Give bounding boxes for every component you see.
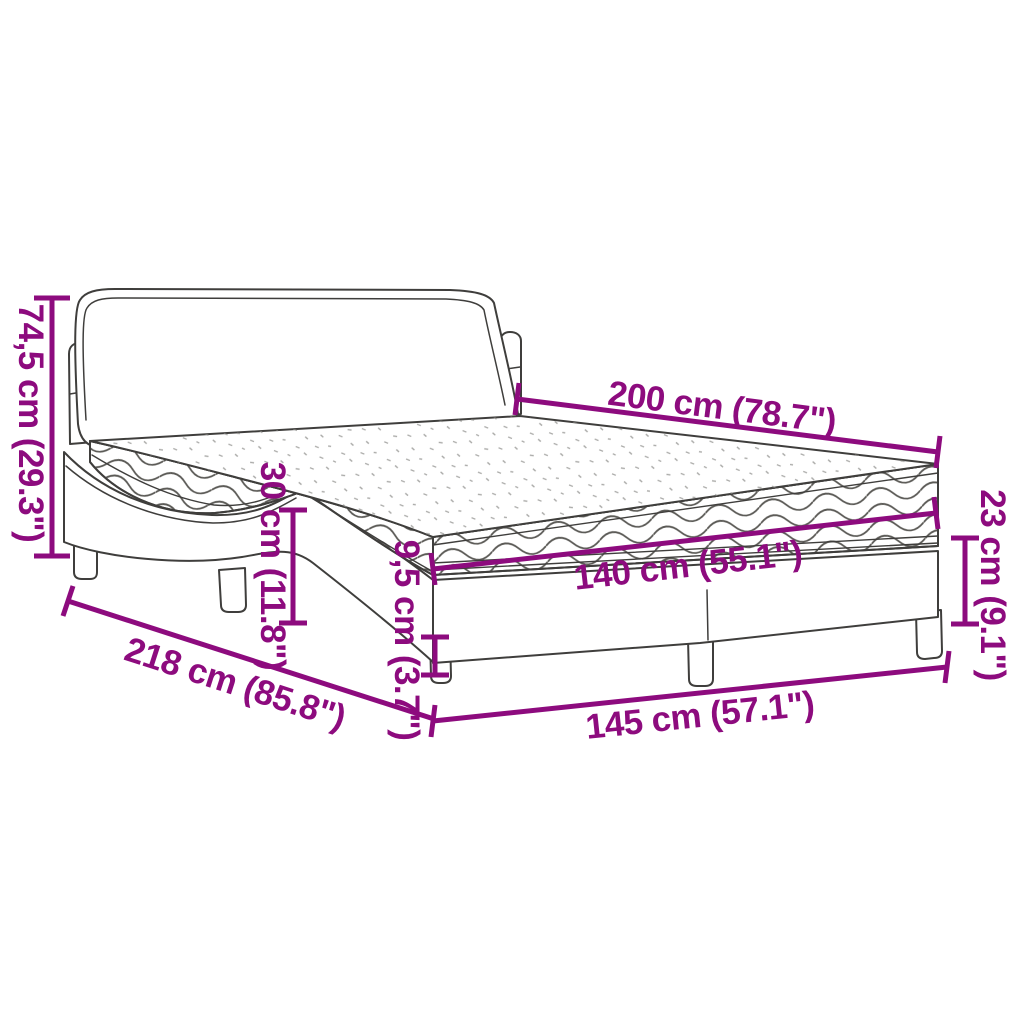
- bed-line-drawing: [0, 0, 1024, 1024]
- dimension-diagram: 74,5 cm (29.3") 200 cm (78.7") 30 cm (11…: [0, 0, 1024, 1024]
- dim-rail-height-label: 9,5 cm (3.7"): [386, 540, 426, 741]
- dim-frame-height-label: 23 cm (9.1"): [972, 489, 1012, 681]
- dim-headboard-height-label: 74,5 cm (29.3"): [10, 304, 50, 543]
- dim-mattress-height-label: 30 cm (11.8"): [252, 462, 292, 671]
